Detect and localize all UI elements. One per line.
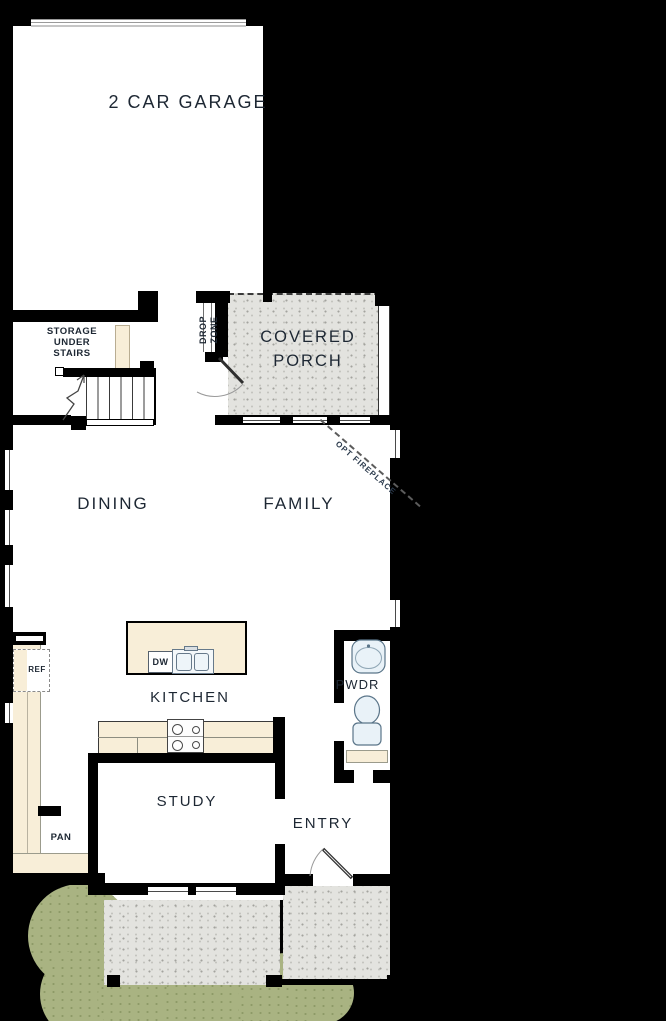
toilet-bowl [355, 696, 380, 724]
dropzone-label-line: DROP [198, 308, 209, 352]
covered-porch-label-line: PORCH [238, 349, 378, 373]
storage-label-line: UNDER [38, 337, 106, 348]
storage-label-line: STORAGE [38, 326, 106, 337]
powder-label: PWDR [320, 677, 395, 693]
powder-sink-faucet [367, 644, 370, 647]
study-label: STUDY [127, 793, 247, 811]
dining-label: DINING [53, 494, 173, 514]
storage-label: STORAGE UNDER STAIRS [38, 326, 106, 359]
floor-plan: REF DW [0, 0, 666, 1021]
stair-arrow [63, 375, 84, 420]
kitchen-label: KITCHEN [120, 689, 260, 707]
entry-door-leaf-core [324, 850, 351, 877]
entry-door-swing [310, 849, 323, 876]
dropzone-label-line: ZONE [209, 308, 220, 352]
entry-label: ENTRY [263, 815, 383, 833]
dropzone-label: DROP ZONE [198, 308, 222, 352]
family-label: FAMILY [239, 494, 359, 514]
toilet-tank [353, 723, 381, 745]
covered-porch-label-line: COVERED [238, 325, 378, 349]
covered-porch-label: COVERED PORCH [238, 325, 378, 373]
pantry-label: PAN [41, 832, 81, 843]
porch-door-swing [197, 384, 243, 396]
garage-label: 2 CAR GARAGE [108, 92, 268, 114]
storage-label-line: STAIRS [38, 348, 106, 359]
